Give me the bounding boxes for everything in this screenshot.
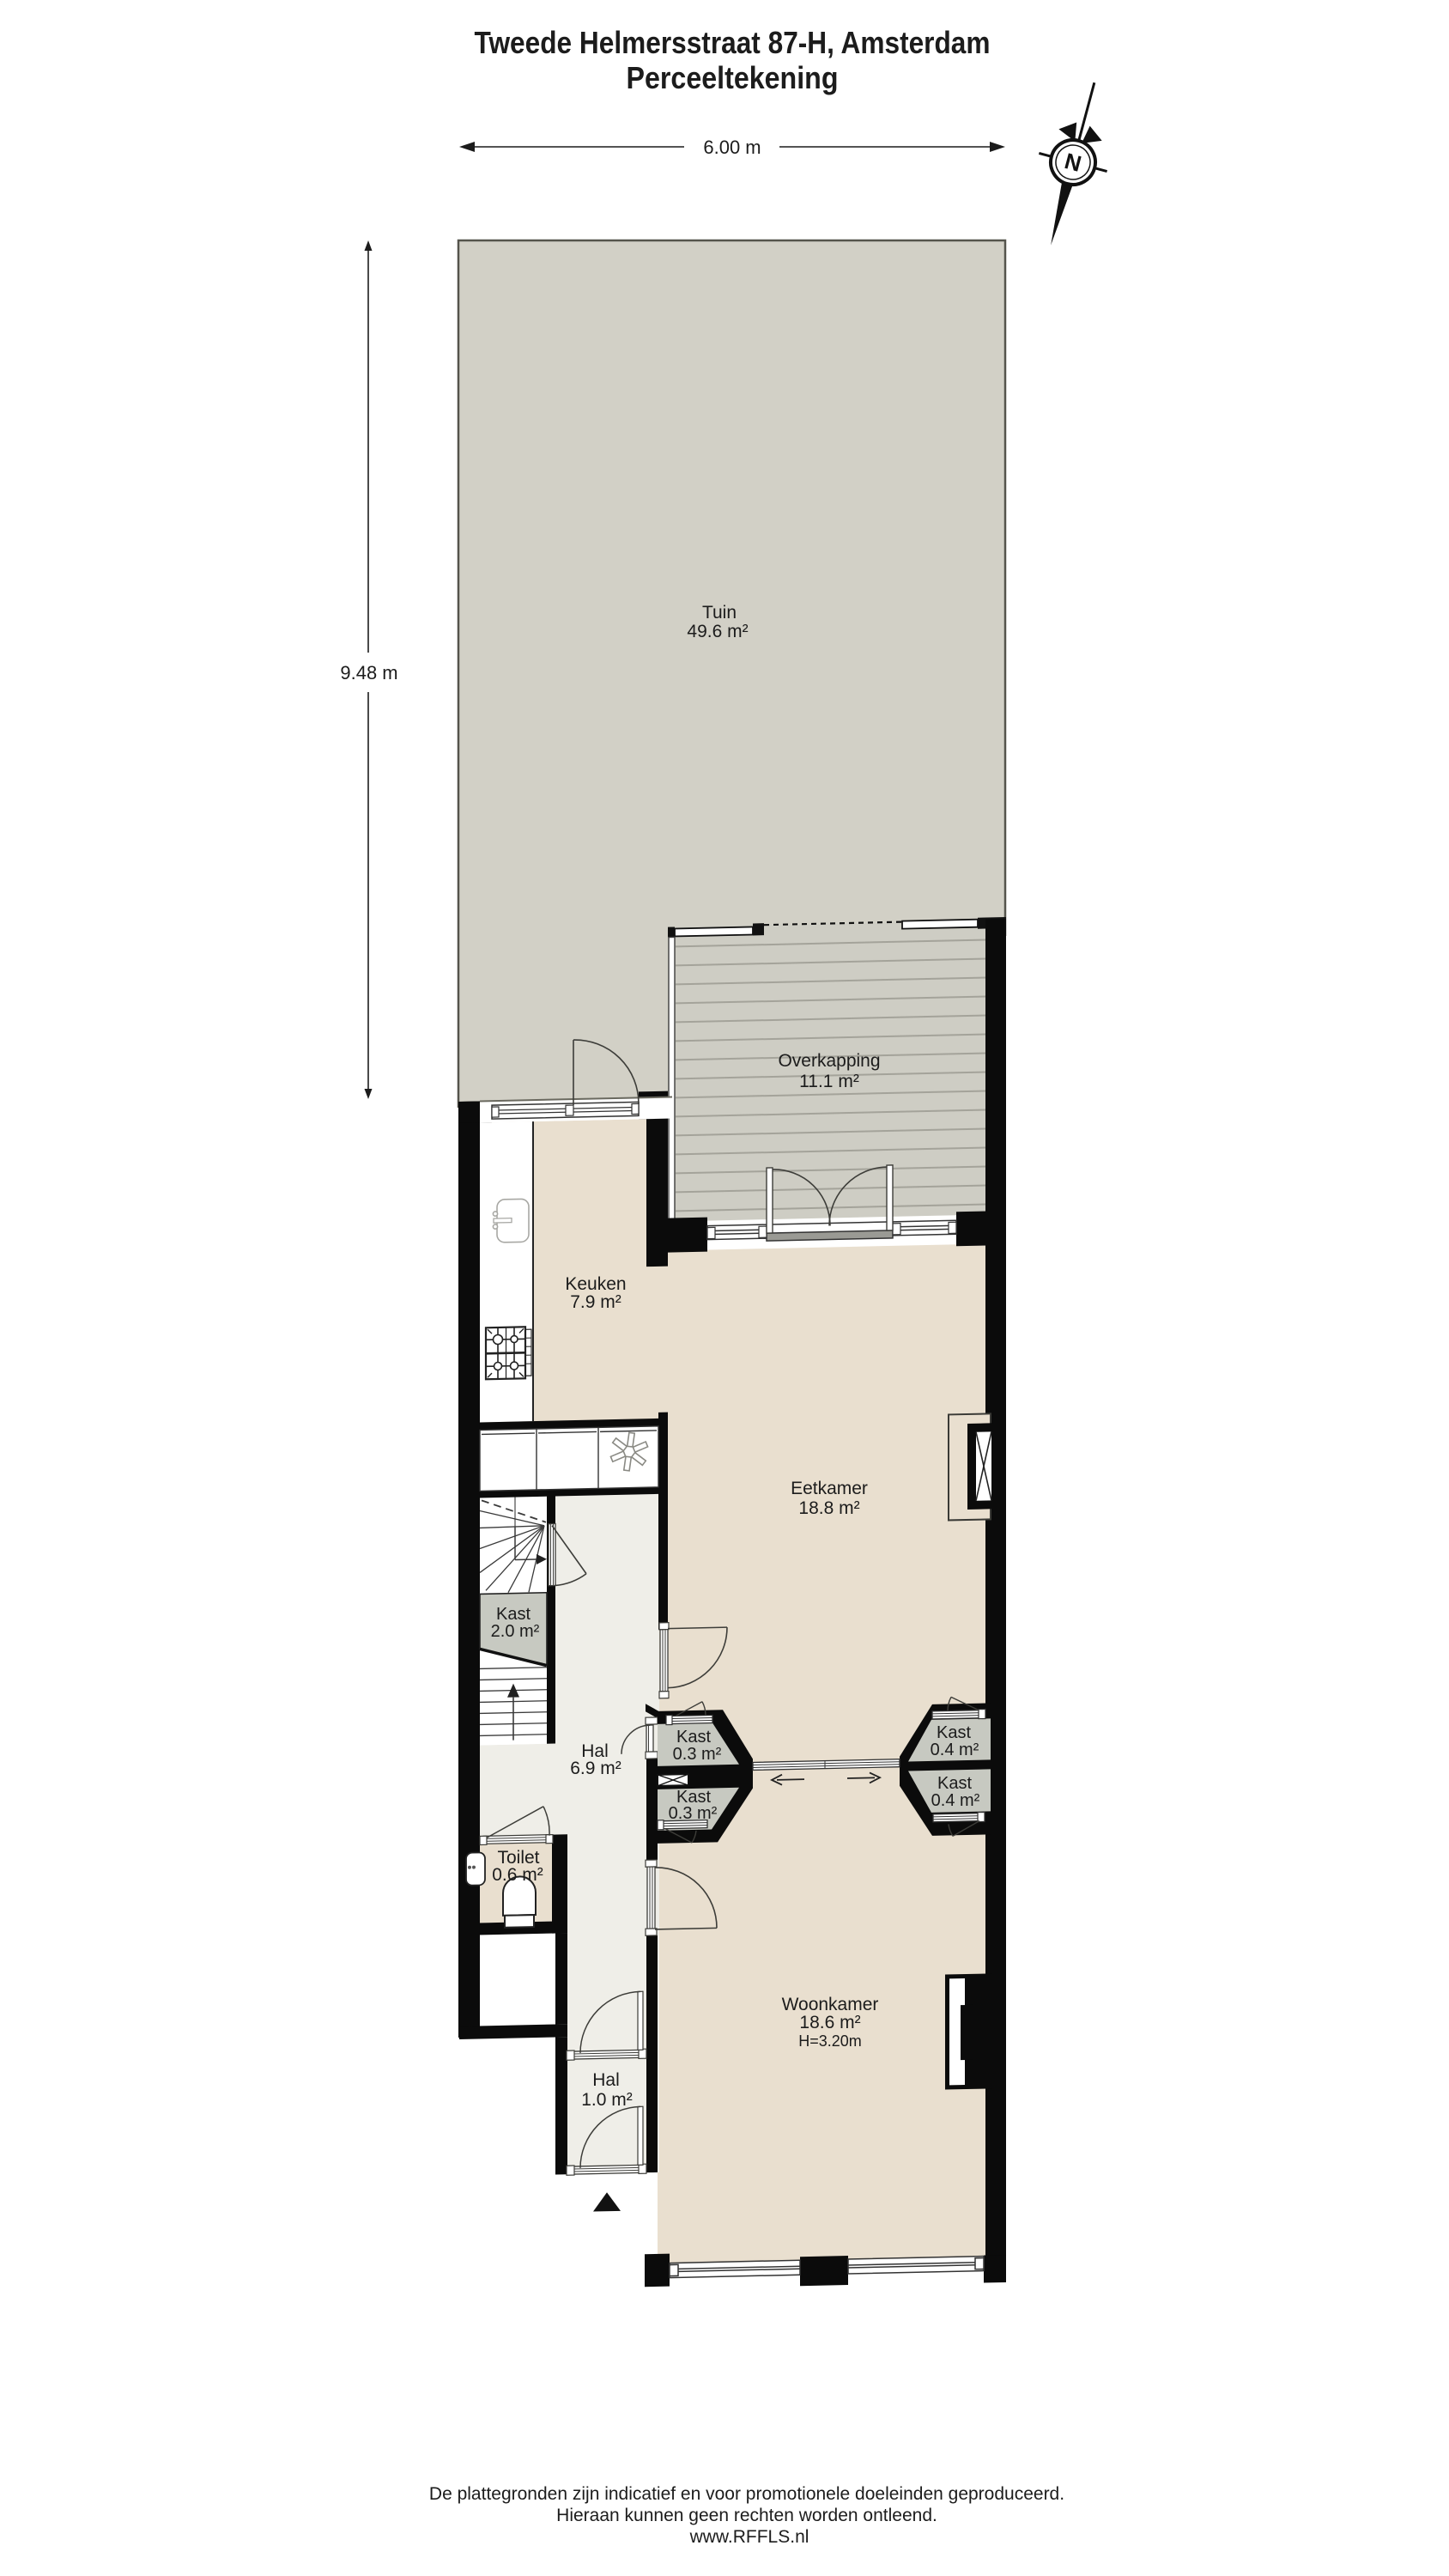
- svg-text:0.3 m²: 0.3 m²: [673, 1745, 722, 1764]
- svg-text:2.0 m²: 2.0 m²: [491, 1622, 540, 1641]
- svg-text:18.8 m²: 18.8 m²: [798, 1498, 859, 1518]
- svg-text:Kast: Kast: [496, 1605, 530, 1624]
- svg-text:0.3 m²: 0.3 m²: [669, 1804, 718, 1823]
- svg-text:www.RFFLS.nl: www.RFFLS.nl: [689, 2527, 809, 2547]
- svg-text:Eetkamer: Eetkamer: [791, 1479, 868, 1498]
- svg-text:Perceeltekening: Perceeltekening: [627, 60, 839, 95]
- svg-text:49.6 m²: 49.6 m²: [687, 622, 748, 641]
- svg-text:6.00 m: 6.00 m: [703, 137, 761, 158]
- svg-text:18.6 m²: 18.6 m²: [799, 2013, 860, 2032]
- svg-text:6.9 m²: 6.9 m²: [570, 1759, 621, 1778]
- svg-text:0.6 m²: 0.6 m²: [492, 1865, 543, 1885]
- svg-text:7.9 m²: 7.9 m²: [570, 1292, 621, 1312]
- svg-text:Kast: Kast: [937, 1723, 971, 1742]
- svg-text:Hal: Hal: [592, 2070, 620, 2090]
- svg-text:Tuin: Tuin: [702, 603, 737, 623]
- svg-text:H=3.20m: H=3.20m: [798, 2032, 862, 2050]
- svg-text:Kast: Kast: [937, 1774, 972, 1793]
- svg-text:Tweede Helmersstraat 87-H, Ams: Tweede Helmersstraat 87-H, Amsterdam: [475, 25, 991, 60]
- svg-text:Kast: Kast: [676, 1728, 711, 1747]
- svg-text:0.4 m²: 0.4 m²: [931, 1741, 979, 1759]
- svg-text:Keuken: Keuken: [565, 1274, 626, 1294]
- svg-text:Overkapping: Overkapping: [778, 1051, 880, 1071]
- svg-text:1.0 m²: 1.0 m²: [581, 2090, 633, 2110]
- svg-text:11.1 m²: 11.1 m²: [799, 1072, 859, 1091]
- svg-text:Woonkamer: Woonkamer: [782, 1995, 879, 2014]
- svg-text:9.48 m: 9.48 m: [340, 662, 397, 683]
- svg-text:Hieraan kunnen geen rechten wo: Hieraan kunnen geen rechten worden ontle…: [556, 2506, 937, 2525]
- svg-text:0.4 m²: 0.4 m²: [931, 1791, 980, 1810]
- svg-text:De plattegronden zijn indicati: De plattegronden zijn indicatief en voor…: [429, 2484, 1064, 2504]
